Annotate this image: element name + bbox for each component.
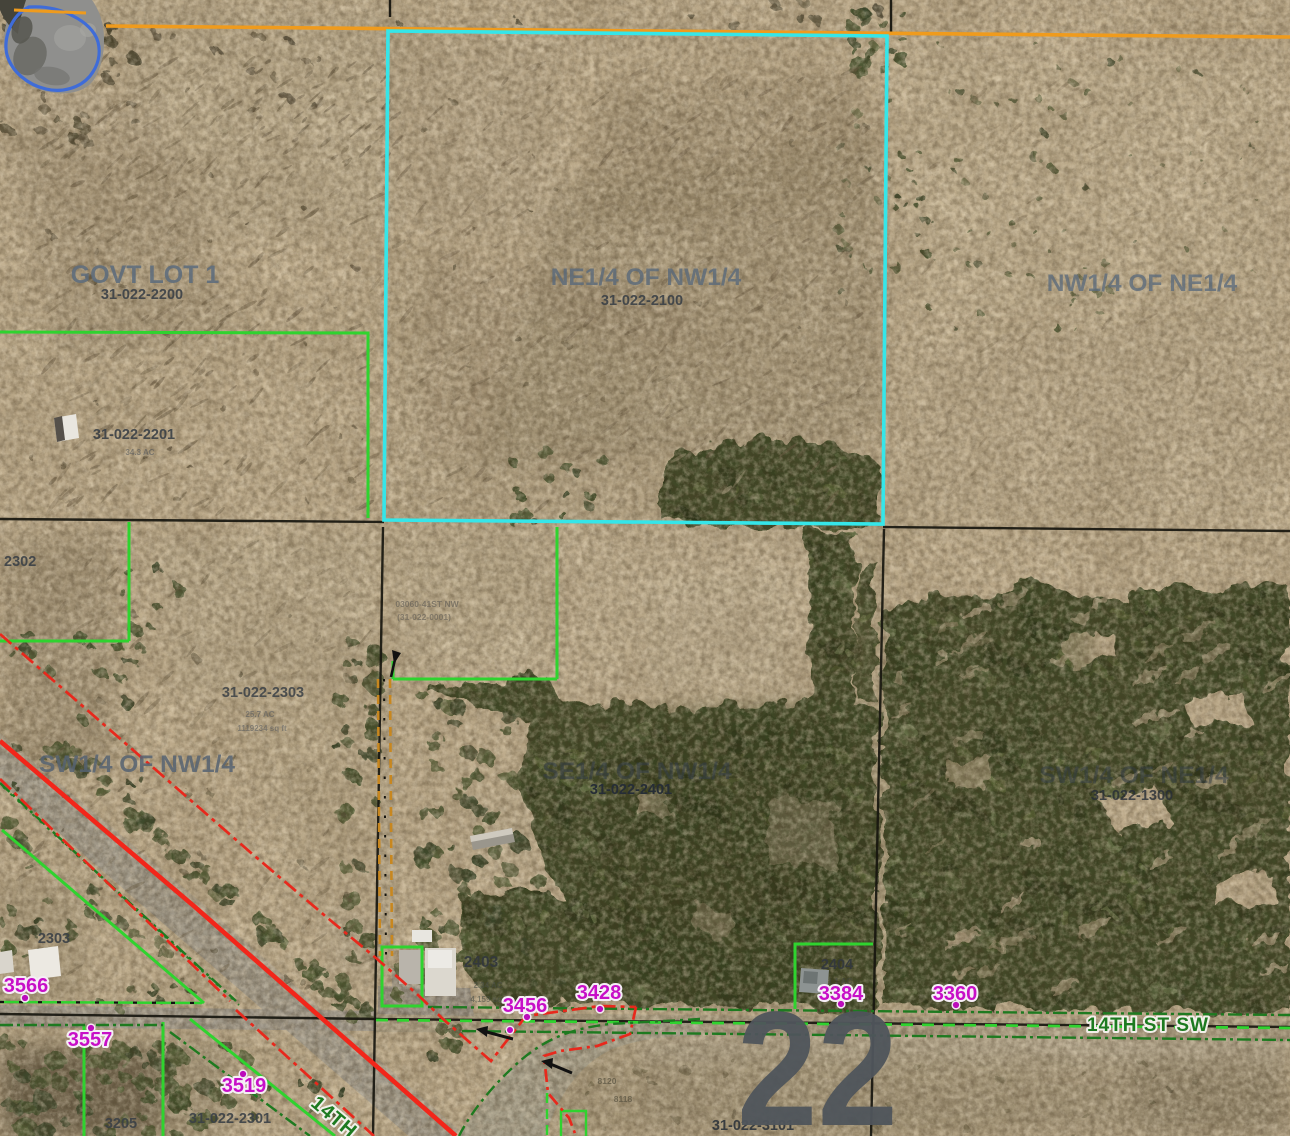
svg-text:2404: 2404 xyxy=(821,957,853,973)
svg-text:31-022-2100: 31-022-2100 xyxy=(601,293,683,309)
svg-text:3205: 3205 xyxy=(105,1116,137,1132)
svg-text:2303: 2303 xyxy=(38,931,70,947)
svg-text:31-022-2303: 31-022-2303 xyxy=(222,685,304,701)
svg-text:31-022-2301: 31-022-2301 xyxy=(189,1111,271,1127)
svg-text:1119234 sq ft: 1119234 sq ft xyxy=(237,724,287,733)
svg-text:2302: 2302 xyxy=(4,554,36,570)
svg-text:SW1/4 OF NE1/4: SW1/4 OF NE1/4 xyxy=(1039,762,1229,789)
svg-text:31-022-2200: 31-022-2200 xyxy=(101,287,183,303)
svg-text:NE1/4 OF NW1/4: NE1/4 OF NW1/4 xyxy=(551,264,742,291)
svg-text:3428: 3428 xyxy=(577,982,622,1004)
svg-text:(31-022-0001): (31-022-0001) xyxy=(397,612,451,622)
svg-text:34.3 AC: 34.3 AC xyxy=(125,448,154,457)
svg-text:14TH ST SW: 14TH ST SW xyxy=(1087,1015,1209,1036)
svg-text:8120: 8120 xyxy=(598,1076,617,1086)
svg-text:31-022-2401: 31-022-2401 xyxy=(590,782,672,798)
svg-text:NW1/4 OF NE1/4: NW1/4 OF NE1/4 xyxy=(1047,270,1238,297)
svg-text:8118: 8118 xyxy=(614,1094,633,1104)
svg-text:31-022-1300: 31-022-1300 xyxy=(1091,788,1173,804)
svg-text:03060-41ST NW: 03060-41ST NW xyxy=(395,599,459,609)
svg-text:2403: 2403 xyxy=(464,954,499,971)
svg-text:22: 22 xyxy=(737,977,898,1136)
svg-text:SE1/4 OF NW1/4: SE1/4 OF NW1/4 xyxy=(542,758,732,785)
svg-text:2.34 AC: 2.34 AC xyxy=(473,981,502,990)
svg-text:31-022-2201: 31-022-2201 xyxy=(93,427,175,443)
svg-text:SW1/4 OF NW1/4: SW1/4 OF NW1/4 xyxy=(39,751,235,778)
svg-text:GOVT LOT 1: GOVT LOT 1 xyxy=(71,261,220,289)
svg-text:25.7 AC: 25.7 AC xyxy=(245,710,274,719)
